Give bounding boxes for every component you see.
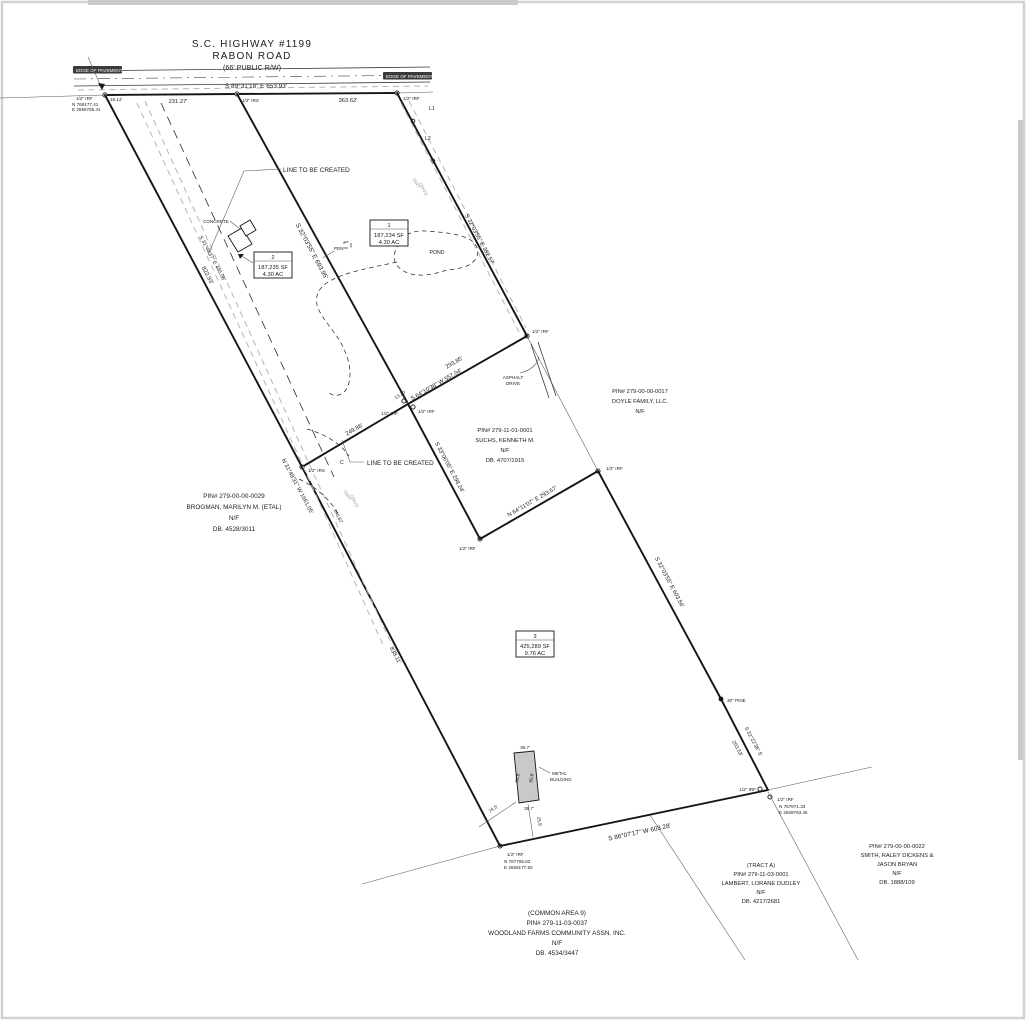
pond-label: POND — [430, 250, 445, 256]
concrete-leader — [230, 221, 240, 229]
suchs-doyle-line — [527, 336, 598, 471]
suchs-north-dist: 293.85' — [445, 356, 464, 371]
smith-name1: SMITH, RALEY DICKENS & — [860, 853, 933, 859]
suchs-s-pin-label: 1/2" IRF — [459, 546, 476, 551]
pin-labels: 1/2" IRF N 768177.41 E 2556765.41 18.12'… — [72, 96, 808, 870]
corner-markers — [103, 91, 772, 848]
buildings — [228, 220, 539, 837]
parcel3-nw-bearing: S 33°06'05" E 298.24' — [433, 441, 465, 493]
double-pin-east-label: 1/2" IRF — [418, 409, 435, 414]
asphalt-label1: ASPHALT — [503, 375, 524, 380]
brogman-db: DB. 4528/3011 — [213, 526, 256, 533]
suchs-south-line — [480, 471, 598, 539]
parcel3-sf: 425,289 SF — [520, 644, 550, 650]
bldg-bottom-dim: 39.7' — [524, 806, 534, 811]
doyle-pin: PIN# 279-00-00-0017 — [612, 389, 668, 395]
sw-northing: N 767765.82 — [504, 859, 531, 864]
parcel1-east-bearing: S 32°03'55" E 382.57' — [463, 213, 495, 265]
parcel2-arrowhead — [238, 254, 244, 259]
suchs-name: SUCHS, KENNETH M. — [475, 438, 535, 444]
sw-easting: E 2558177.93 — [504, 865, 533, 870]
smith-nf: N/F — [892, 871, 902, 877]
plat-drawing: S.C. HIGHWAY #1199 RABON ROAD (66' PUBLI… — [0, 0, 1026, 1020]
lambert-west-line — [650, 815, 745, 960]
owner-doyle: PIN# 279-00-00-0017 DOYLE FAMILY, LLC. N… — [612, 389, 669, 415]
se-dist: 203.53' — [730, 740, 743, 758]
smith-name2: JASON BRYAN — [877, 862, 917, 868]
drive-loop — [317, 262, 398, 395]
west-boundary — [105, 95, 500, 846]
concrete-label: CONCRETE — [203, 219, 229, 224]
common-db: DB. 4534/3447 — [536, 950, 579, 957]
parcel2-sf: 187,235 SF — [258, 265, 288, 271]
lambert-db: DB. 4217/2681 — [742, 899, 781, 905]
se-easting: E 2559763.45 — [779, 810, 808, 815]
owner-blocks: PIN# 279-00-00-0029 BROGMAN, MARILYN M. … — [187, 389, 934, 957]
suchs-north-line — [302, 336, 527, 467]
pen-outline — [344, 242, 351, 248]
dirt-drive-right-label2: DRIVE — [418, 182, 429, 197]
owner-smith: PIN# 279-00-00-0022 SMITH, RALEY DICKENS… — [860, 844, 933, 886]
asphalt-drive-edge2 — [538, 342, 556, 396]
parcel2-num: 2 — [271, 255, 274, 261]
parcel1-num: 1 — [387, 223, 390, 229]
ne-pin-label: 1/2" IRF — [403, 96, 420, 101]
lambert-nf: N/F — [756, 890, 766, 896]
drive-dist: 246.62' — [333, 509, 344, 525]
parcel3-num: 3 — [533, 634, 536, 640]
edge-of-pavement-left: EDGE OF PAVEMENT — [76, 68, 123, 73]
pine-label: 30" PINE — [727, 698, 746, 703]
nw-pin-label: 1/2" IRF — [76, 96, 93, 101]
parcel3-nw-line — [408, 404, 480, 539]
metal-label2: BUILDING — [550, 777, 572, 782]
owner-brogman: PIN# 279-00-00-0029 BROGMAN, MARILYN M. … — [187, 493, 282, 533]
tract-boundaries — [105, 93, 768, 846]
highway-title: S.C. HIGHWAY #1199 — [192, 39, 312, 50]
owner-lambert: (TRACT A) PIN# 279-11-03-0001 LAMBERT, L… — [722, 863, 801, 905]
adjoiner-lines — [362, 336, 872, 960]
road-centerline — [74, 75, 430, 79]
suchs-nf: N/F — [500, 448, 510, 454]
rw-line-seg2 — [237, 93, 397, 94]
west-total-bearing: N 31°48'31" W 1661.05' — [280, 458, 314, 515]
double-pin-west-label: 1/2" IRF — [381, 411, 398, 416]
parcel1-sf: 187,234 SF — [374, 233, 404, 239]
divider-parcel1-2 — [237, 94, 407, 402]
lambert-title: (TRACT A) — [747, 863, 775, 869]
road-rw: (66' PUBLIC R/W) — [223, 63, 281, 72]
rw-line-seg1 — [105, 94, 237, 95]
inner-dashed-bearing: S 31°48'37" E 445.06' — [197, 235, 226, 282]
line-to-be-created-2: LINE TO BE CREATED — [367, 460, 434, 467]
lambert-name: LAMBERT, LORANE DUDLEY — [722, 881, 801, 887]
road-bearing-label: S 89°31'18" E 653.93' — [225, 82, 287, 90]
survey-plat-page: S.C. HIGHWAY #1199 RABON ROAD (66' PUBLI… — [0, 0, 1026, 1020]
leaders — [88, 57, 550, 773]
doyle-nf: N/F — [635, 409, 645, 415]
metal-label1: METAL — [552, 771, 567, 776]
se-bearing: S 32°22'36" E — [743, 726, 764, 758]
parcel2-ac: 4.30 AC — [263, 272, 284, 278]
l1-label: L1 — [429, 106, 435, 112]
p3-ne-pin-label: 1/2" IRF — [606, 466, 623, 471]
brogman-name: BROGMAN, MARILYN M. (ETAL) — [187, 504, 282, 511]
smith-db: DB. 1888/109 — [879, 880, 914, 886]
smith-pin: PIN# 279-00-00-0022 — [869, 844, 925, 850]
suchs-db: DB. 4707/1915 — [486, 458, 525, 464]
curve-label: C — [340, 460, 344, 466]
line-to-be-created-1: LINE TO BE CREATED — [283, 167, 350, 174]
south-ext-west — [362, 846, 500, 884]
scan-artifact-right — [1018, 120, 1023, 760]
dirt-drive-left-edge1 — [137, 103, 383, 645]
asphalt-drive-edge1 — [531, 344, 549, 398]
road-group: S.C. HIGHWAY #1199 RABON ROAD (66' PUBLI… — [0, 39, 433, 105]
south-bearing: S 86°07'17" W 603.28' — [608, 822, 672, 843]
lambert-pin: PIN# 279-11-03-0001 — [733, 872, 788, 878]
dirt-drive-right-edge1 — [401, 103, 519, 332]
bldg-top-dim: 39.7' — [520, 745, 530, 750]
se-northing: N 767871.33 — [779, 804, 806, 809]
nw-easting: E 2556765.41 — [72, 107, 101, 112]
road-seg2-dist: 363.62' — [339, 98, 358, 104]
parcel3-ac: 9.76 AC — [525, 651, 546, 657]
brogman-pin: PIN# 279-00-00-0029 — [203, 493, 265, 500]
dirt-drive-left-label2: DRIVE — [349, 494, 360, 509]
l2-label: L2 — [425, 136, 431, 142]
asphalt-label2: DRIVE — [506, 381, 520, 386]
suchs-pin: PIN# 279-11-01-0001 — [477, 428, 532, 434]
scan-artifact-top — [88, 0, 518, 5]
dirt-drive-left-edge2 — [145, 101, 390, 641]
nw-tie-dist: 18.12' — [110, 97, 122, 102]
se-pin2-label: 1/2" IRF — [777, 797, 794, 802]
suchs-south-bearing: N 64°11'07" E 293.67' — [507, 486, 559, 519]
owner-suchs: PIN# 279-11-01-0001 SUCHS, KENNETH M. N/… — [475, 428, 535, 464]
tie-dist2: 25.9' — [536, 816, 543, 827]
west-upper-dist: 822.93' — [200, 266, 214, 285]
drive-lines — [137, 101, 556, 645]
sw-pin-label: 1/2" IRF — [507, 852, 524, 857]
common-title: (COMMON AREA 9) — [528, 910, 586, 917]
common-pin: PIN# 279-11-03-0037 — [527, 920, 588, 927]
tie-dist1: 74.5' — [488, 804, 499, 814]
metal-leader — [539, 767, 550, 773]
rw-line-ext-right — [397, 92, 433, 93]
nmid-pin-label: 1/2" IRS — [242, 98, 259, 103]
common-name: WOODLAND FARMS COMMUNITY ASSN. INC. — [488, 930, 626, 937]
created2-leader — [342, 440, 364, 462]
nw-arrowhead — [98, 83, 105, 90]
road-seg1-dist: 231.27' — [169, 99, 188, 105]
parcel1-ac: 4.30 AC — [379, 240, 400, 246]
inner-dashed-line — [161, 103, 334, 477]
parcel1-east-boundary — [397, 93, 527, 336]
asphalt-pin-label: 1/2" IRF — [532, 329, 549, 334]
suchs-north-bearing: S 64°10'38" W 557.04' — [410, 368, 463, 402]
doyle-name: DOYLE FAMILY, LLC. — [612, 399, 669, 405]
edge-of-pavement-right: EDGE OF PAVEMENT — [386, 74, 433, 79]
south-ext-east — [768, 767, 872, 790]
east-boundary — [598, 471, 768, 790]
se-pin1-label: 1/2" IRF — [739, 787, 756, 792]
pen-label: PEN — [334, 246, 343, 251]
common-nf: N/F — [552, 940, 562, 947]
mid-irs-label: 1/2" IRS — [308, 468, 325, 473]
road-name: RABON ROAD — [212, 51, 291, 62]
owner-common-area: (COMMON AREA 9) PIN# 279-11-03-0037 WOOD… — [488, 910, 626, 957]
brogman-nf: N/F — [229, 515, 239, 522]
